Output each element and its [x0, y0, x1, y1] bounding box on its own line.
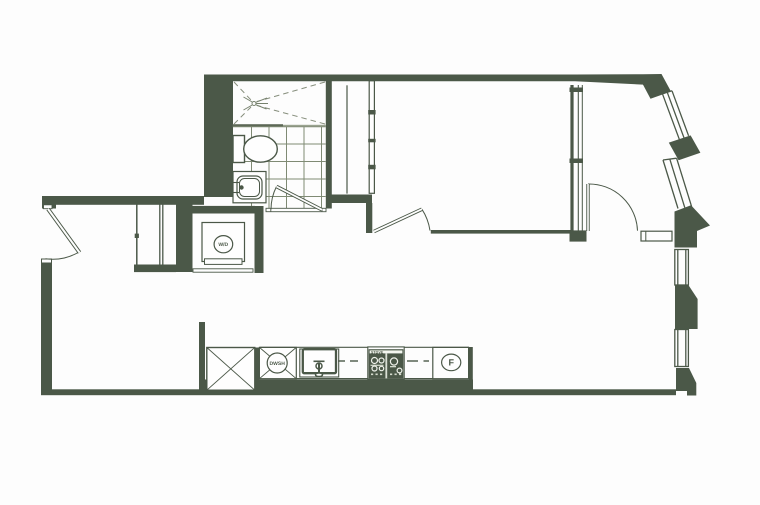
- svg-text:W/D: W/D: [218, 242, 228, 248]
- svg-text:F: F: [448, 358, 454, 368]
- svg-text:DWSH: DWSH: [270, 361, 286, 367]
- svg-text:STOVE: STOVE: [371, 350, 384, 354]
